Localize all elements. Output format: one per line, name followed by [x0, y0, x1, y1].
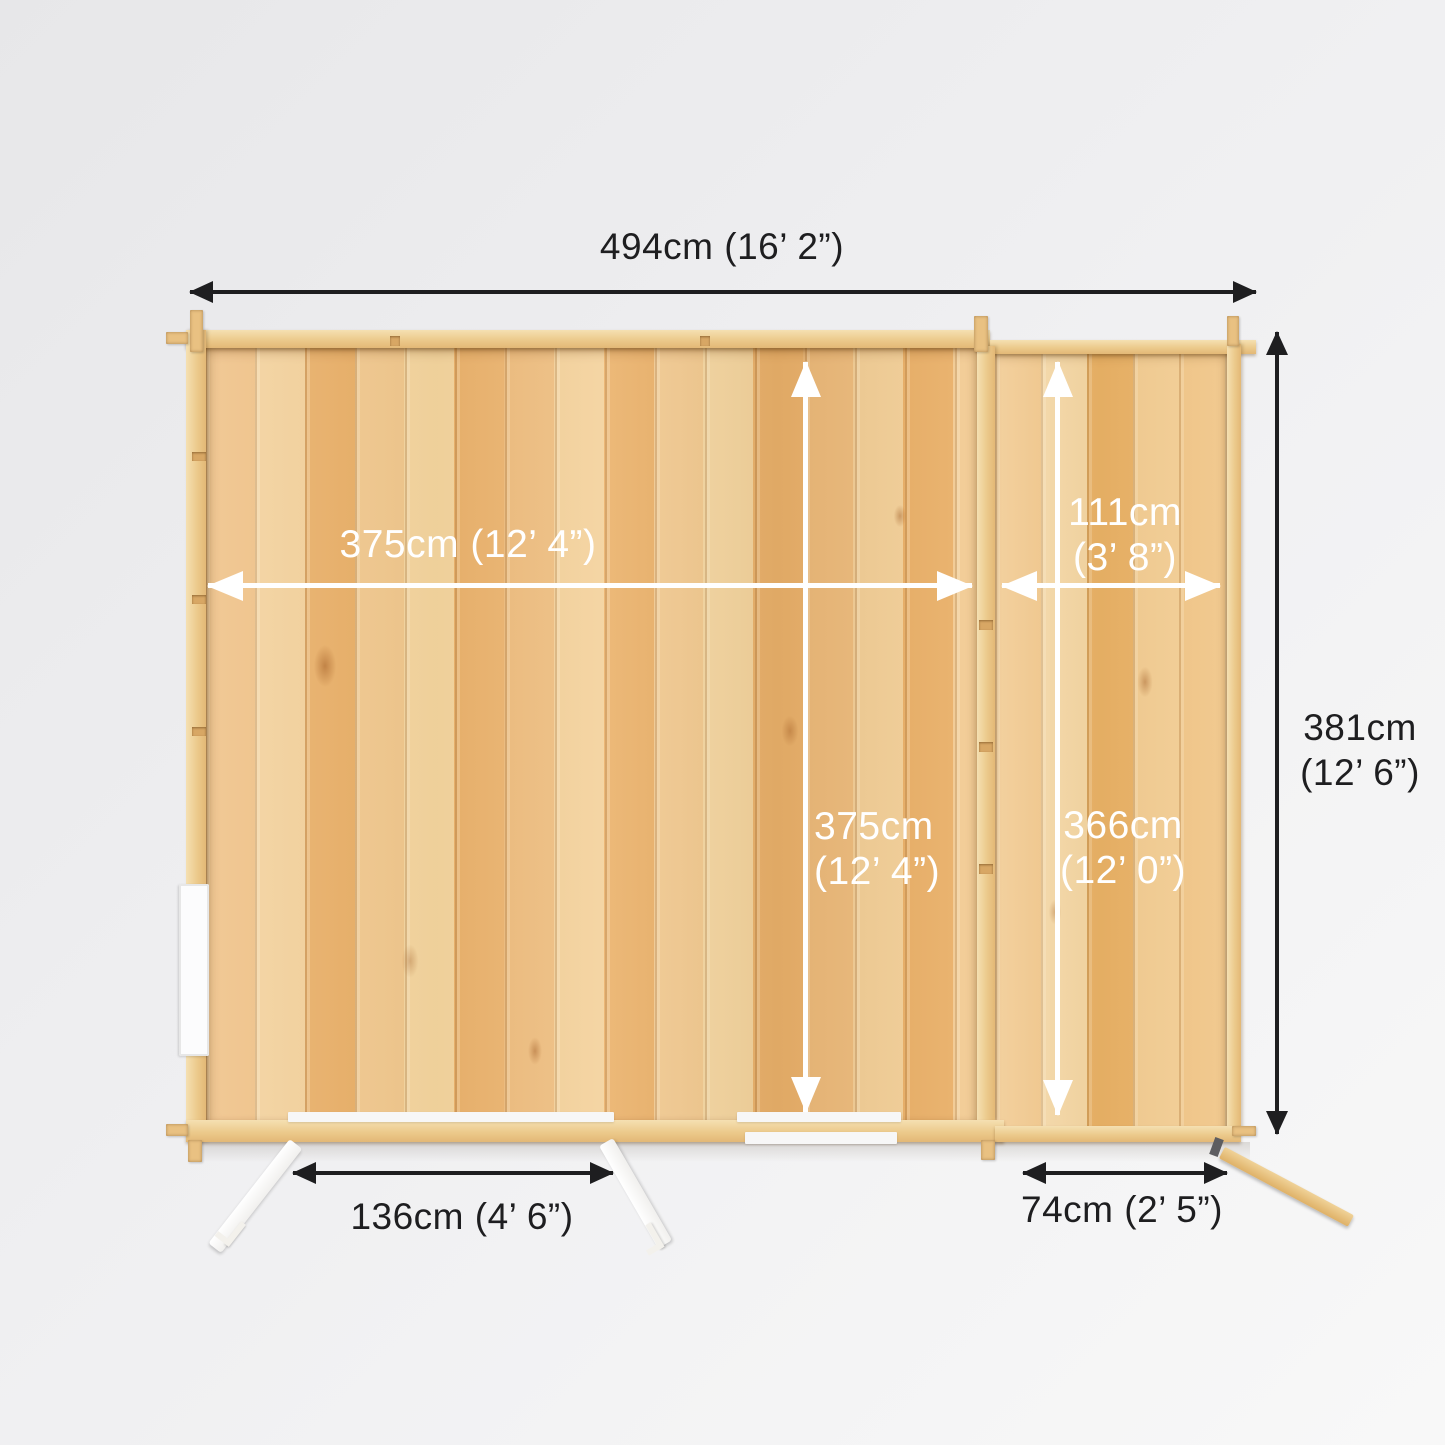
front-window-sill	[745, 1132, 897, 1144]
log-notch	[192, 595, 206, 604]
main-room-floor	[205, 346, 977, 1120]
label-overall-depth: 381cm (12’ 6”)	[1300, 705, 1420, 795]
label-annex-internal-width: 111cm (3’ 8”)	[1068, 490, 1182, 580]
divider-wall	[977, 346, 995, 1120]
corner-post-top-left	[190, 310, 203, 352]
label-annex-internal-width-line2: (3’ 8”)	[1068, 535, 1182, 580]
log-notch	[979, 864, 993, 874]
label-main-door-width: 136cm (4’ 6”)	[350, 1196, 573, 1238]
log-notch	[192, 452, 206, 461]
log-notch	[979, 742, 993, 752]
corner-post-divider-bottom	[981, 1140, 995, 1160]
log-notch	[700, 336, 710, 346]
label-annex-internal-depth-line1: 366cm	[1060, 803, 1186, 848]
label-overall-width: 494cm (16’ 2”)	[600, 226, 844, 268]
label-annex-internal-width-line1: 111cm	[1068, 490, 1182, 535]
corner-post-bottom-left	[188, 1140, 202, 1162]
label-overall-depth-line2: (12’ 6”)	[1300, 750, 1420, 795]
corner-post-top-right	[1227, 316, 1239, 346]
french-door-frame	[288, 1112, 614, 1122]
building-shadow	[200, 1142, 1250, 1162]
arrow-overall-width	[190, 290, 1256, 294]
annex-door-open	[1219, 1147, 1354, 1227]
arrow-main-internal-depth	[803, 362, 808, 1112]
corner-post-divider-top	[974, 316, 988, 352]
rail-stub-top-left	[166, 332, 188, 344]
log-notch	[979, 620, 993, 630]
arrow-annex-door-width	[1023, 1171, 1227, 1175]
front-window-frame	[737, 1112, 901, 1122]
floor-plan-diagram: 494cm (16’ 2”) 381cm (12’ 6”) 375cm (12’…	[0, 0, 1445, 1445]
label-overall-depth-line1: 381cm	[1300, 705, 1420, 750]
label-main-internal-depth-line2: (12’ 4”)	[814, 849, 940, 894]
log-notch	[192, 727, 206, 736]
arrow-annex-internal-width	[1002, 583, 1220, 588]
label-annex-internal-depth: 366cm (12’ 0”)	[1060, 803, 1186, 893]
label-annex-door-width: 74cm (2’ 5”)	[1021, 1189, 1223, 1231]
label-main-internal-depth: 375cm (12’ 4”)	[814, 804, 940, 894]
log-notch	[390, 336, 400, 346]
arrow-main-internal-width	[208, 583, 972, 588]
arrow-annex-internal-depth	[1055, 362, 1060, 1115]
annex-right-wall	[1227, 344, 1241, 1132]
label-main-internal-depth-line1: 375cm	[814, 804, 940, 849]
arrow-main-door-width	[293, 1171, 613, 1175]
rail-stub-bottom-right	[1232, 1126, 1256, 1136]
annex-top-wall	[990, 340, 1256, 354]
arrow-overall-depth	[1275, 332, 1279, 1134]
label-annex-internal-depth-line2: (12’ 0”)	[1060, 848, 1186, 893]
side-window	[179, 884, 209, 1056]
rail-stub-bottom-left	[166, 1124, 188, 1136]
annex-floor	[995, 352, 1227, 1130]
label-main-internal-width: 375cm (12’ 4”)	[340, 523, 597, 567]
annex-bottom-wall	[995, 1126, 1241, 1142]
main-top-wall	[186, 330, 990, 348]
